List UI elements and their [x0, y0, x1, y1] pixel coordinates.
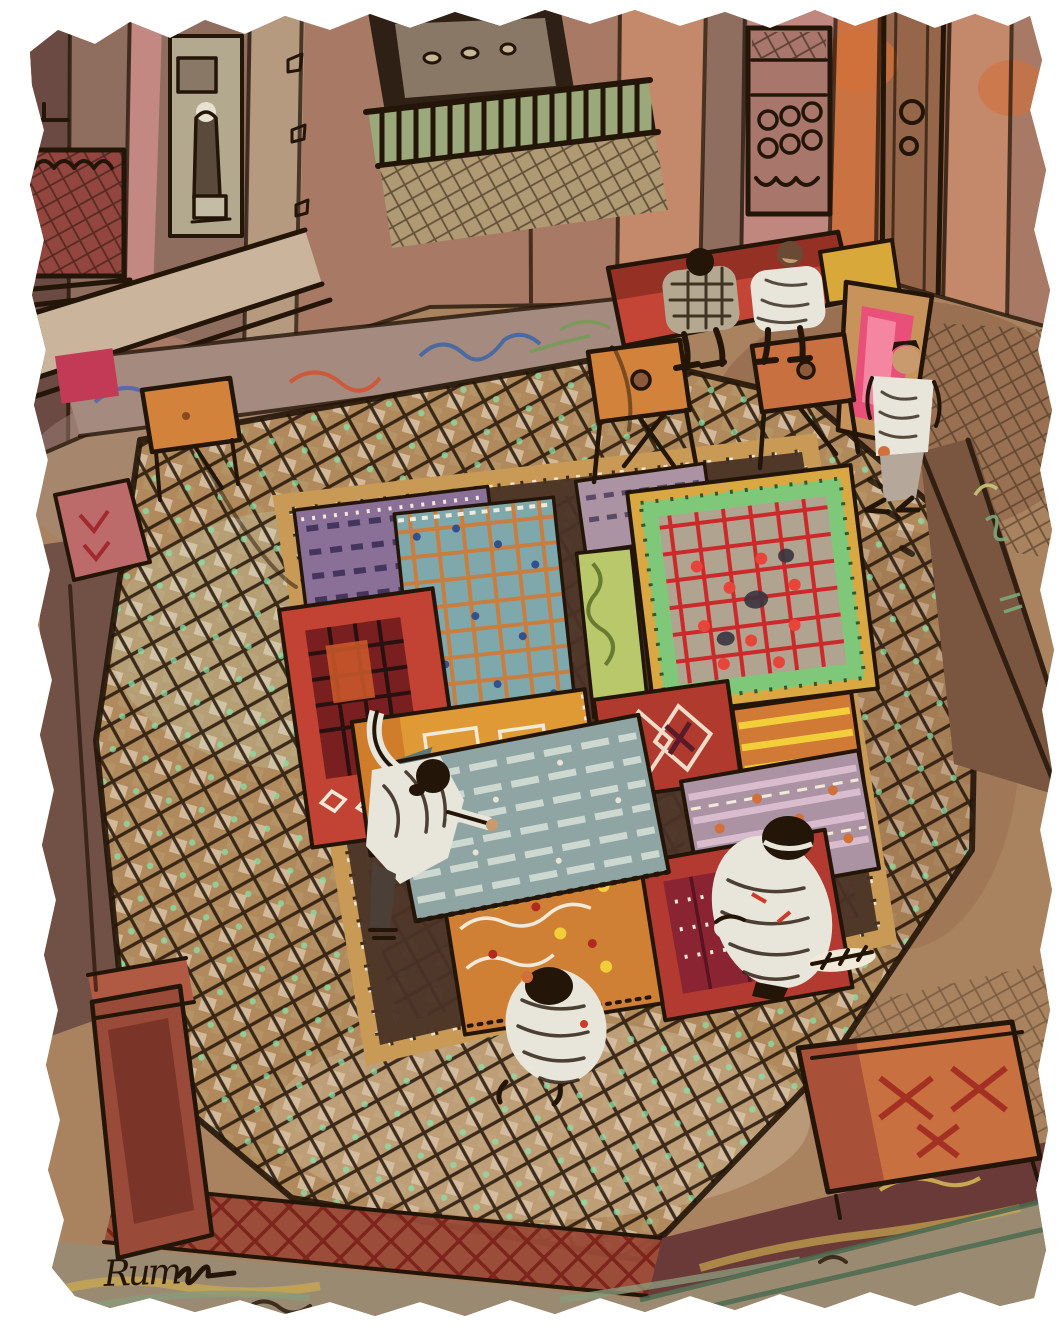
- painting-carpet-showroom: Rum: [0, 0, 1060, 1336]
- lattice-window-right: [748, 28, 830, 214]
- signature-text: Rum: [102, 1251, 181, 1295]
- painting-canvas: Rum: [0, 0, 1060, 1336]
- rug-redgrid-large: [627, 465, 878, 716]
- door-niche-lamp: [170, 36, 242, 236]
